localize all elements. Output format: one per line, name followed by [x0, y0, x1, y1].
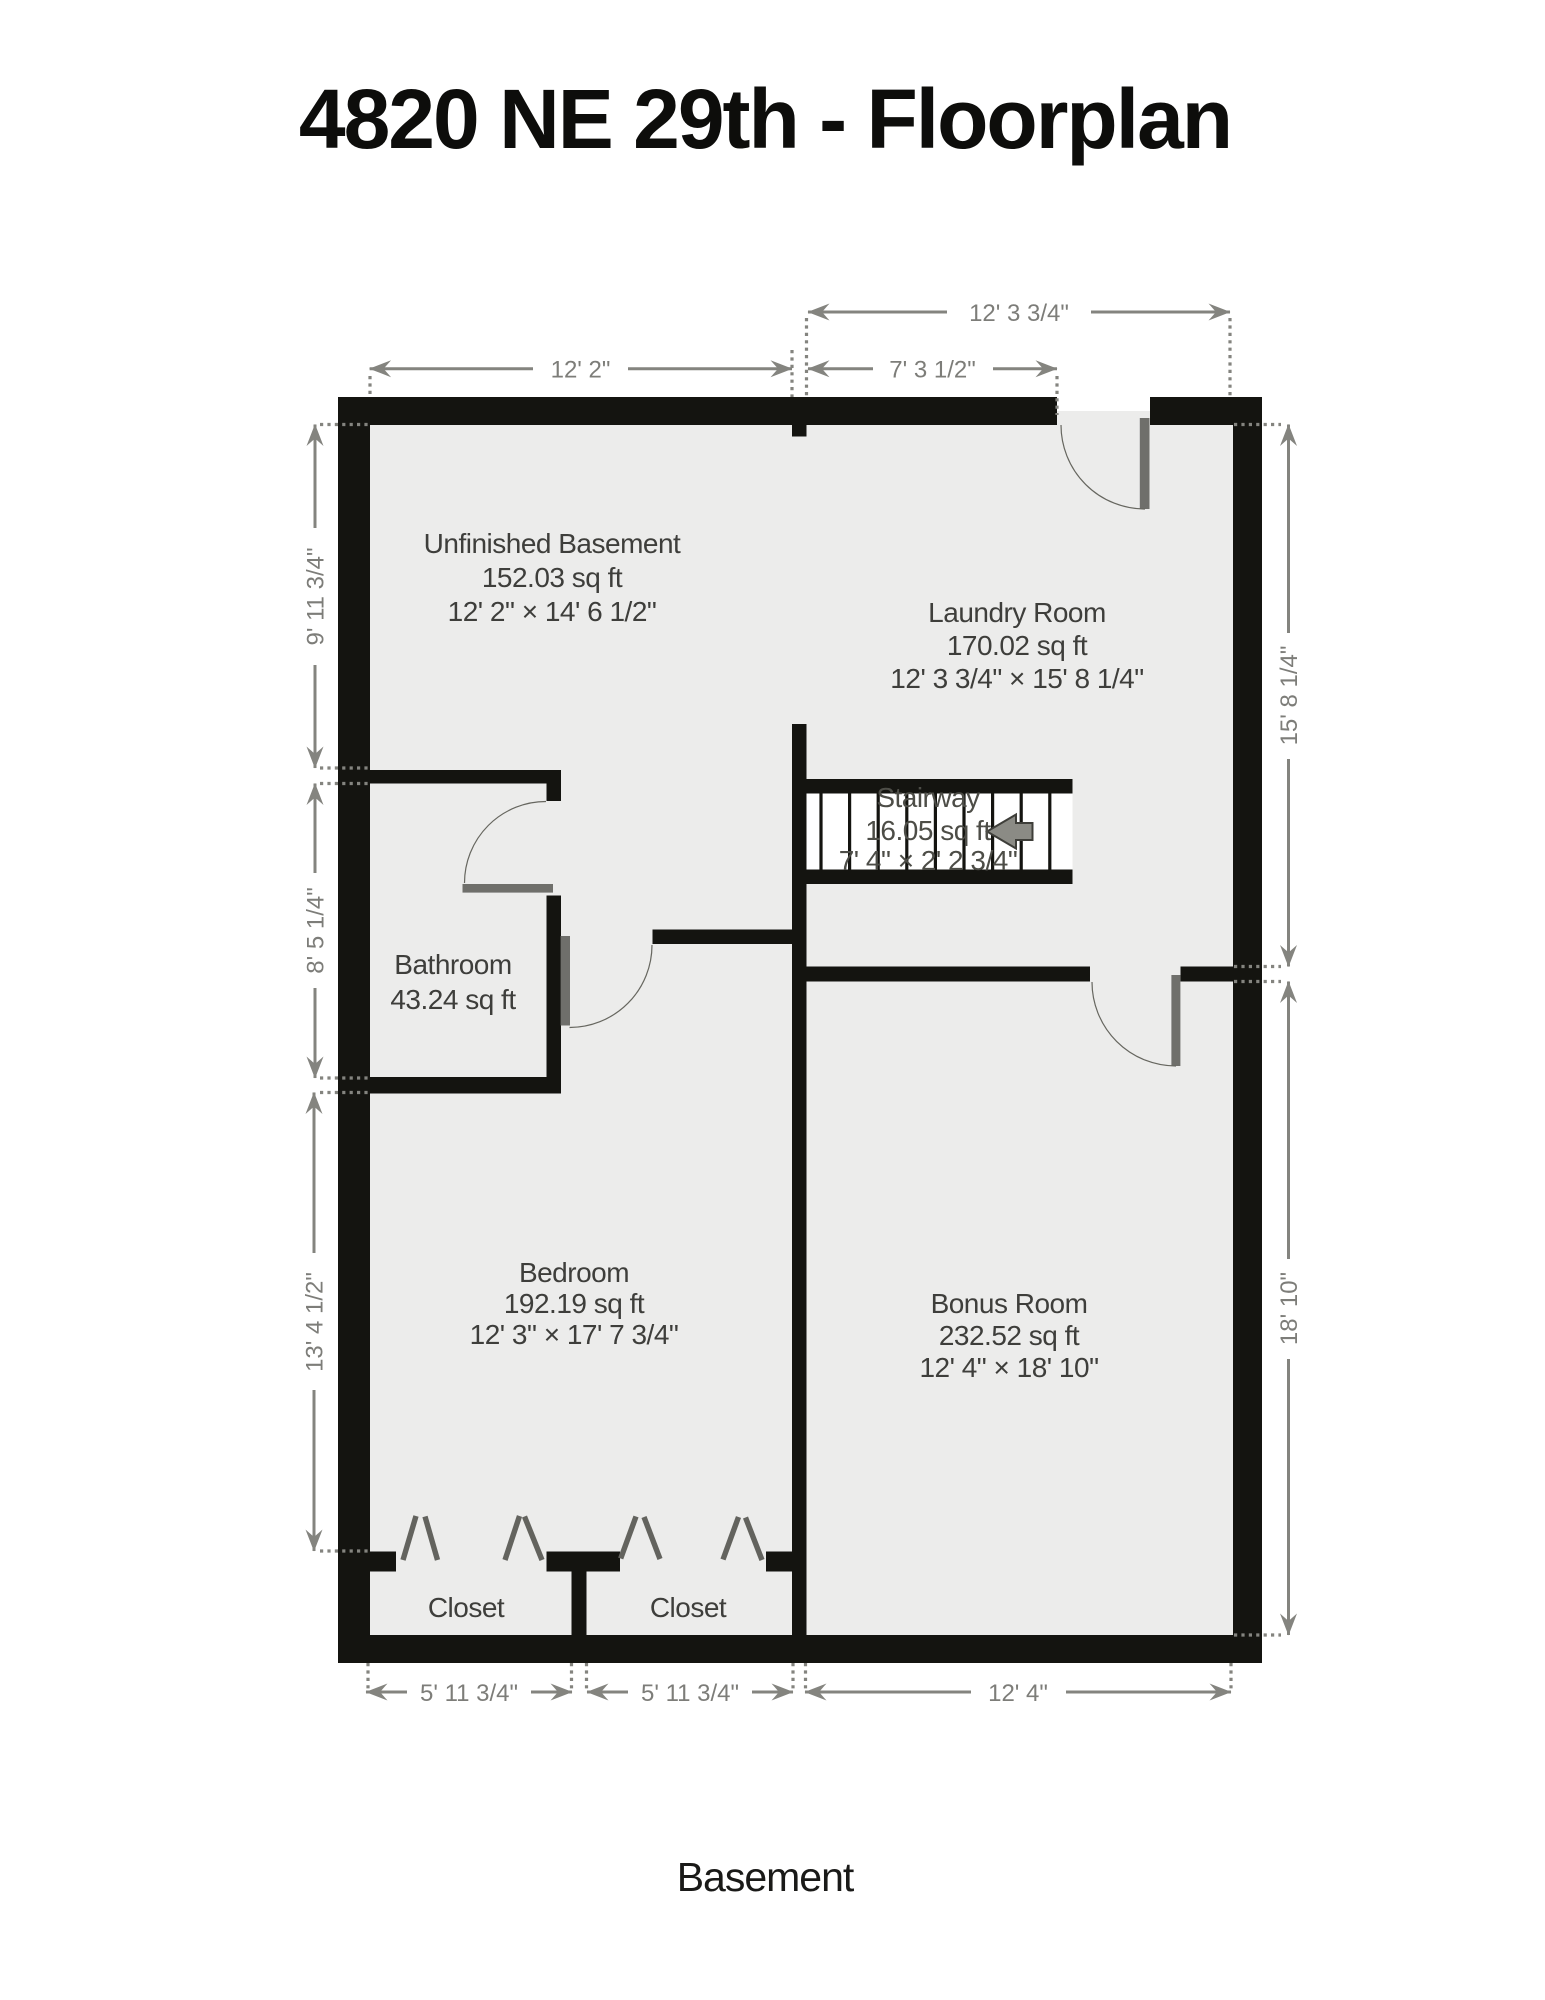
svg-text:Unfinished Basement: Unfinished Basement: [424, 528, 681, 559]
svg-text:7' 4" × 2' 2 3/4": 7' 4" × 2' 2 3/4": [839, 845, 1018, 876]
svg-text:9' 11 3/4": 9' 11 3/4": [303, 547, 330, 645]
svg-text:43.24 sq ft: 43.24 sq ft: [390, 984, 516, 1015]
svg-text:12' 3 3/4": 12' 3 3/4": [969, 300, 1069, 327]
svg-text:Bonus Room: Bonus Room: [931, 1288, 1088, 1319]
svg-text:152.03 sq ft: 152.03 sq ft: [482, 562, 623, 593]
svg-text:18' 10": 18' 10": [1276, 1272, 1303, 1345]
svg-text:12' 2" × 14' 6 1/2": 12' 2" × 14' 6 1/2": [448, 596, 657, 627]
svg-text:16.05 sq ft: 16.05 sq ft: [865, 815, 991, 846]
svg-text:Bathroom: Bathroom: [394, 949, 511, 980]
svg-text:Closet: Closet: [428, 1592, 505, 1623]
svg-text:8' 5 1/4": 8' 5 1/4": [303, 887, 330, 974]
svg-text:12' 4": 12' 4": [988, 1680, 1048, 1707]
svg-text:12' 3" × 17' 7 3/4": 12' 3" × 17' 7 3/4": [470, 1319, 679, 1350]
svg-text:7' 3 1/2": 7' 3 1/2": [889, 357, 976, 384]
svg-text:13' 4 1/2": 13' 4 1/2": [302, 1272, 329, 1372]
svg-text:5' 11 3/4": 5' 11 3/4": [420, 1680, 518, 1707]
svg-text:5' 11 3/4": 5' 11 3/4": [641, 1680, 739, 1707]
svg-text:232.52 sq ft: 232.52 sq ft: [939, 1320, 1080, 1351]
svg-text:192.19 sq ft: 192.19 sq ft: [504, 1288, 645, 1319]
svg-text:170.02 sq ft: 170.02 sq ft: [947, 630, 1088, 661]
svg-text:Bedroom: Bedroom: [519, 1257, 629, 1288]
svg-text:Closet: Closet: [650, 1592, 727, 1623]
svg-text:Laundry Room: Laundry Room: [928, 597, 1106, 628]
svg-text:Stairway: Stairway: [876, 782, 980, 813]
svg-text:15' 8 1/4": 15' 8 1/4": [1276, 646, 1303, 746]
svg-text:Basement: Basement: [677, 1854, 855, 1900]
svg-text:12' 4" × 18' 10": 12' 4" × 18' 10": [919, 1352, 1098, 1383]
svg-text:12' 2": 12' 2": [551, 357, 611, 384]
svg-text:12' 3 3/4" × 15' 8 1/4": 12' 3 3/4" × 15' 8 1/4": [890, 663, 1143, 694]
svg-text:4820 NE 29th - Floorplan: 4820 NE 29th - Floorplan: [299, 72, 1231, 166]
